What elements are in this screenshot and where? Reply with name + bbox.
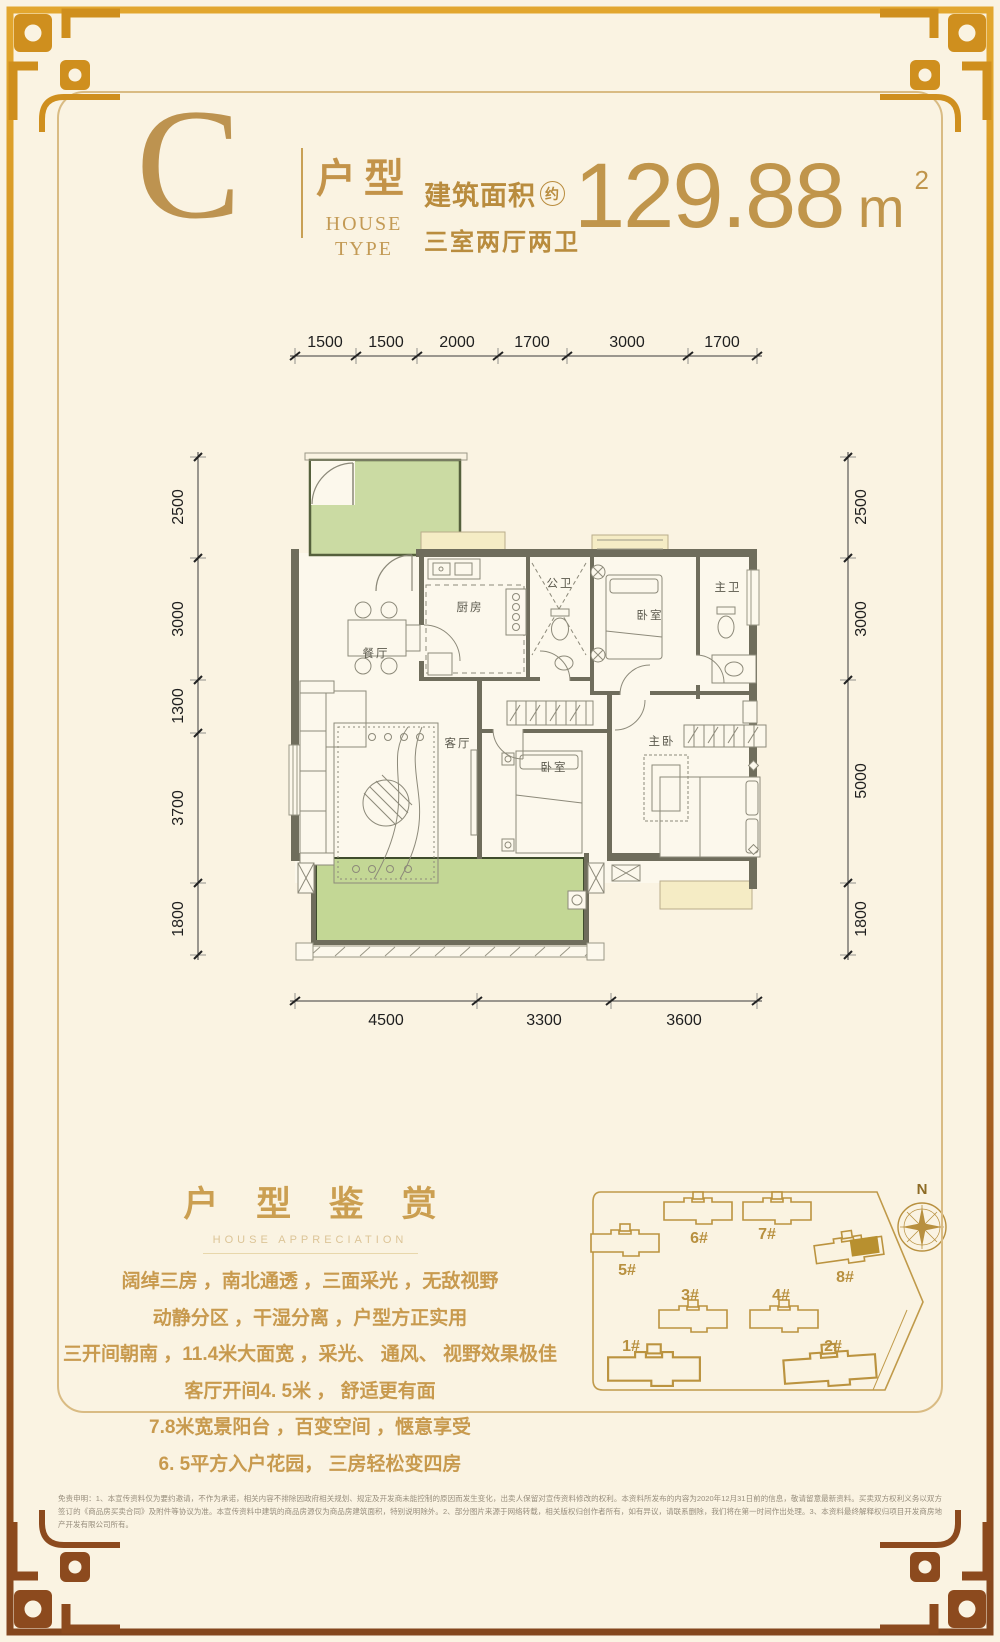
svg-text:3000: 3000 [170,601,187,637]
room-label-master-bath: 主卫 [715,581,742,594]
svg-text:4500: 4500 [368,1012,404,1029]
site-plan: 5# 6# 7# 8# 3# 4# 1# 2# N [555,1122,965,1412]
dim-bottom [290,993,762,1009]
room-label-dining: 餐厅 [363,646,390,660]
frame-corner-top-left [13,13,120,132]
room-label-living: 客厅 [445,736,472,750]
appreciation-line: 7.8米宽景阳台 ，百变空间 ，惬意享受 [55,1410,565,1447]
dim-right [840,452,856,960]
room-label-bedroom-mid: 卧室 [541,760,568,774]
dim-bottom-labels: 4500 3300 3600 [368,1012,702,1029]
entrance-door [311,461,355,505]
building-label-5: 5# [618,1262,636,1279]
building-label-6: 6# [690,1230,708,1247]
room-label-bedroom-top: 卧室 [637,608,664,622]
area-info: 建筑面积 约 三室两厅两卫 [424,174,580,257]
dim-left [190,452,206,960]
svg-text:3700: 3700 [170,790,187,826]
appreciation-line: 三开间朝南 ，11.4米大面宽 ，采光、 通风、 视野效果极佳 [55,1337,565,1374]
svg-text:3300: 3300 [526,1012,562,1029]
room-label-kitchen: 厨房 [457,601,484,614]
house-type-label: 户型 HOUSE TYPE [316,146,412,261]
house-type-en-2: TYPE [316,238,412,261]
area-label: 建筑面积 [424,174,536,213]
area-value: 129.88 [574,145,843,247]
appreciation-section: 户 型 鉴 赏 HOUSE APPRECIATION 阔绰三房 ，南北通透 ，三… [55,1176,565,1483]
house-type-en-1: HOUSE [316,213,412,236]
area-value-group: 129.88 m2 [574,144,929,249]
balcony-railing [296,943,604,960]
appreciation-line: 阔绰三房 ，南北通透 ，三面采光 ，无敌视野 [55,1264,565,1301]
building-label-8: 8# [836,1269,854,1286]
appreciation-line: 客厅开间4. 5米 ， 舒适更有面 [55,1374,565,1411]
room-label-master-bedroom: 主卧 [649,735,676,748]
svg-text:2500: 2500 [170,489,187,525]
room-label-public-bath: 公卫 [547,577,574,590]
floor-plan: 厨房 公卫 卧室 主卫 餐厅 客厅 卧室 主卧 1500 1500 2000 1… [160,325,880,1065]
building-label-7: 7# [758,1226,776,1243]
building-label-1: 1# [622,1338,640,1355]
appreciation-line: 6. 5平方入户花园， 三房轻松变四房 [55,1447,565,1484]
svg-text:2500: 2500 [853,489,870,525]
svg-text:1800: 1800 [853,901,870,937]
building-label-4: 4# [772,1287,790,1304]
floorplan-poster: C 户型 HOUSE TYPE 建筑面积 约 三室两厅两卫 129.88 m2 [0,0,1000,1642]
area-unit: m [858,176,905,239]
approx-badge: 约 [540,181,565,206]
disclaimer-text: 免责申明：1、本宣传资料仅为要约邀请，不作为承诺，相关内容不排除因政府相关规划、… [58,1492,942,1531]
svg-text:5000: 5000 [853,763,870,799]
area-unit-exponent: 2 [915,165,929,195]
svg-text:2000: 2000 [439,334,475,351]
building-label-3: 3# [681,1287,699,1304]
compass-north-label: N [917,1181,928,1198]
appreciation-body: 阔绰三房 ，南北通透 ，三面采光 ，无敌视野 动静分区 ，干湿分离 ，户型方正实… [55,1264,565,1483]
dim-top-labels: 1500 1500 2000 1700 3000 1700 [307,334,740,351]
svg-text:1300: 1300 [170,688,187,724]
building-shapes [591,1192,884,1389]
svg-text:1500: 1500 [307,334,343,351]
svg-text:3000: 3000 [609,334,645,351]
building-label-2: 2# [824,1338,842,1355]
appreciation-title: 户 型 鉴 赏 [55,1176,565,1227]
appreciation-subtitle: HOUSE APPRECIATION [55,1234,565,1246]
svg-text:3600: 3600 [666,1012,702,1029]
svg-text:1800: 1800 [170,901,187,937]
dim-right-labels: 2500 3000 5000 1800 [853,489,870,937]
svg-text:1700: 1700 [704,334,740,351]
svg-text:1500: 1500 [368,334,404,351]
appreciation-line: 动静分区 ，干湿分离 ，户型方正实用 [55,1301,565,1338]
house-type-cn: 户型 [316,146,412,204]
frame-corner-top-right [880,13,987,132]
svg-text:1700: 1700 [514,334,550,351]
dim-left-labels: 2500 3000 1300 3700 1800 [170,489,187,937]
balcony [316,858,584,942]
appreciation-divider [203,1253,418,1254]
svg-text:3000: 3000 [853,601,870,637]
house-type-letter: C [136,86,241,244]
layout-label: 三室两厅两卫 [424,222,580,257]
header-divider [301,148,303,238]
compass-icon [898,1203,946,1251]
